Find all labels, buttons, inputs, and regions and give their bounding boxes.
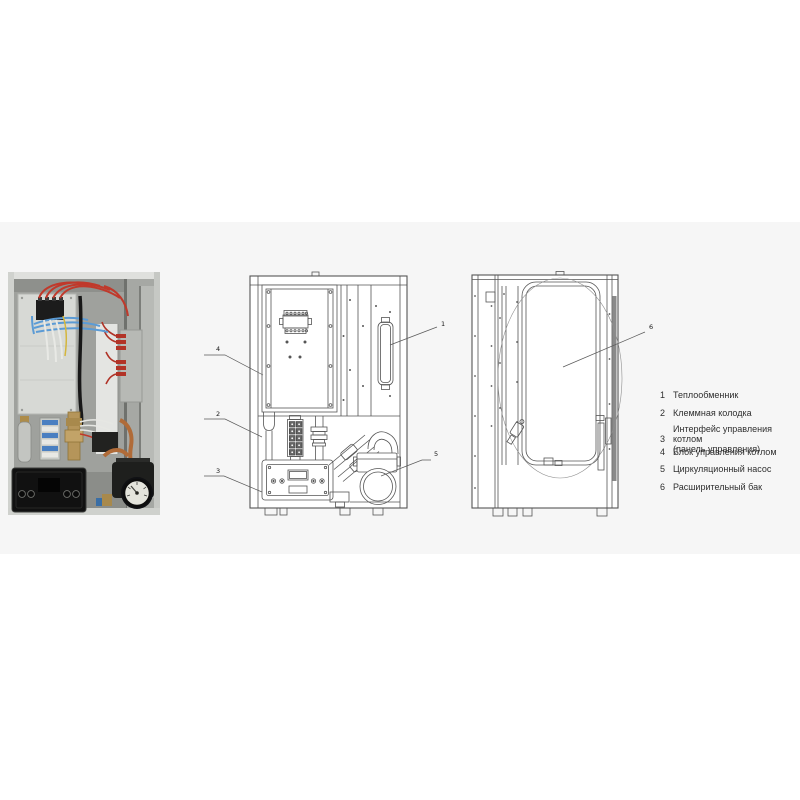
photo-filter-cylinder (18, 416, 31, 462)
legend-label: Циркуляционный насос (673, 464, 800, 474)
legend-item-expansion-tank: 6 Расширительный бак (660, 482, 800, 492)
photo-terminal-strip (40, 418, 60, 460)
expansion-tank-drawing (522, 282, 600, 465)
heat-exchanger-drawing (378, 318, 393, 390)
legend-label: Блок управления котлом (673, 447, 800, 457)
side-view-diagram: 6 (460, 266, 668, 524)
figure-canvas: 4 2 3 1 5 (0, 0, 800, 800)
legend-number: 6 (660, 482, 673, 492)
legend-label: Теплообменник (673, 390, 800, 400)
legend-item-heat-exchanger: 1 Теплообменник (660, 390, 800, 400)
control-unit-drawing (262, 285, 337, 412)
legend-item-pump: 5 Циркуляционный насос (660, 464, 800, 474)
control-panel-drawing (262, 460, 333, 500)
legend-number: 4 (660, 447, 673, 457)
callout-label-3: 3 (216, 467, 220, 475)
callout-label-4: 4 (216, 345, 220, 353)
legend: 1 Теплообменник 2 Клеммная колодка 3 Инт… (660, 386, 800, 498)
photo-black-cable (80, 296, 82, 426)
photo-control-panel (12, 468, 86, 512)
legend-label: Клеммная колодка (673, 408, 800, 418)
callout-label-2: 2 (216, 410, 220, 418)
legend-number: 5 (660, 464, 673, 474)
front-feet (265, 508, 383, 515)
front-view-diagram: 4 2 3 1 5 (200, 266, 450, 524)
legend-number: 3 (660, 434, 673, 444)
legend-number: 1 (660, 390, 673, 400)
photo-brass-fitting (65, 412, 83, 460)
legend-number: 2 (660, 408, 673, 418)
boiler-photo (8, 272, 160, 515)
callout-label-1: 1 (441, 320, 445, 328)
callout-label-6: 6 (649, 323, 653, 331)
side-feet (493, 508, 607, 516)
legend-label: Расширительный бак (673, 482, 800, 492)
callout-label-5: 5 (434, 450, 438, 458)
legend-item-terminal-block: 2 Клеммная колодка (660, 408, 800, 418)
photo-contactor (36, 297, 64, 320)
legend-item-control-unit: 4 Блок управления котлом (660, 447, 800, 457)
